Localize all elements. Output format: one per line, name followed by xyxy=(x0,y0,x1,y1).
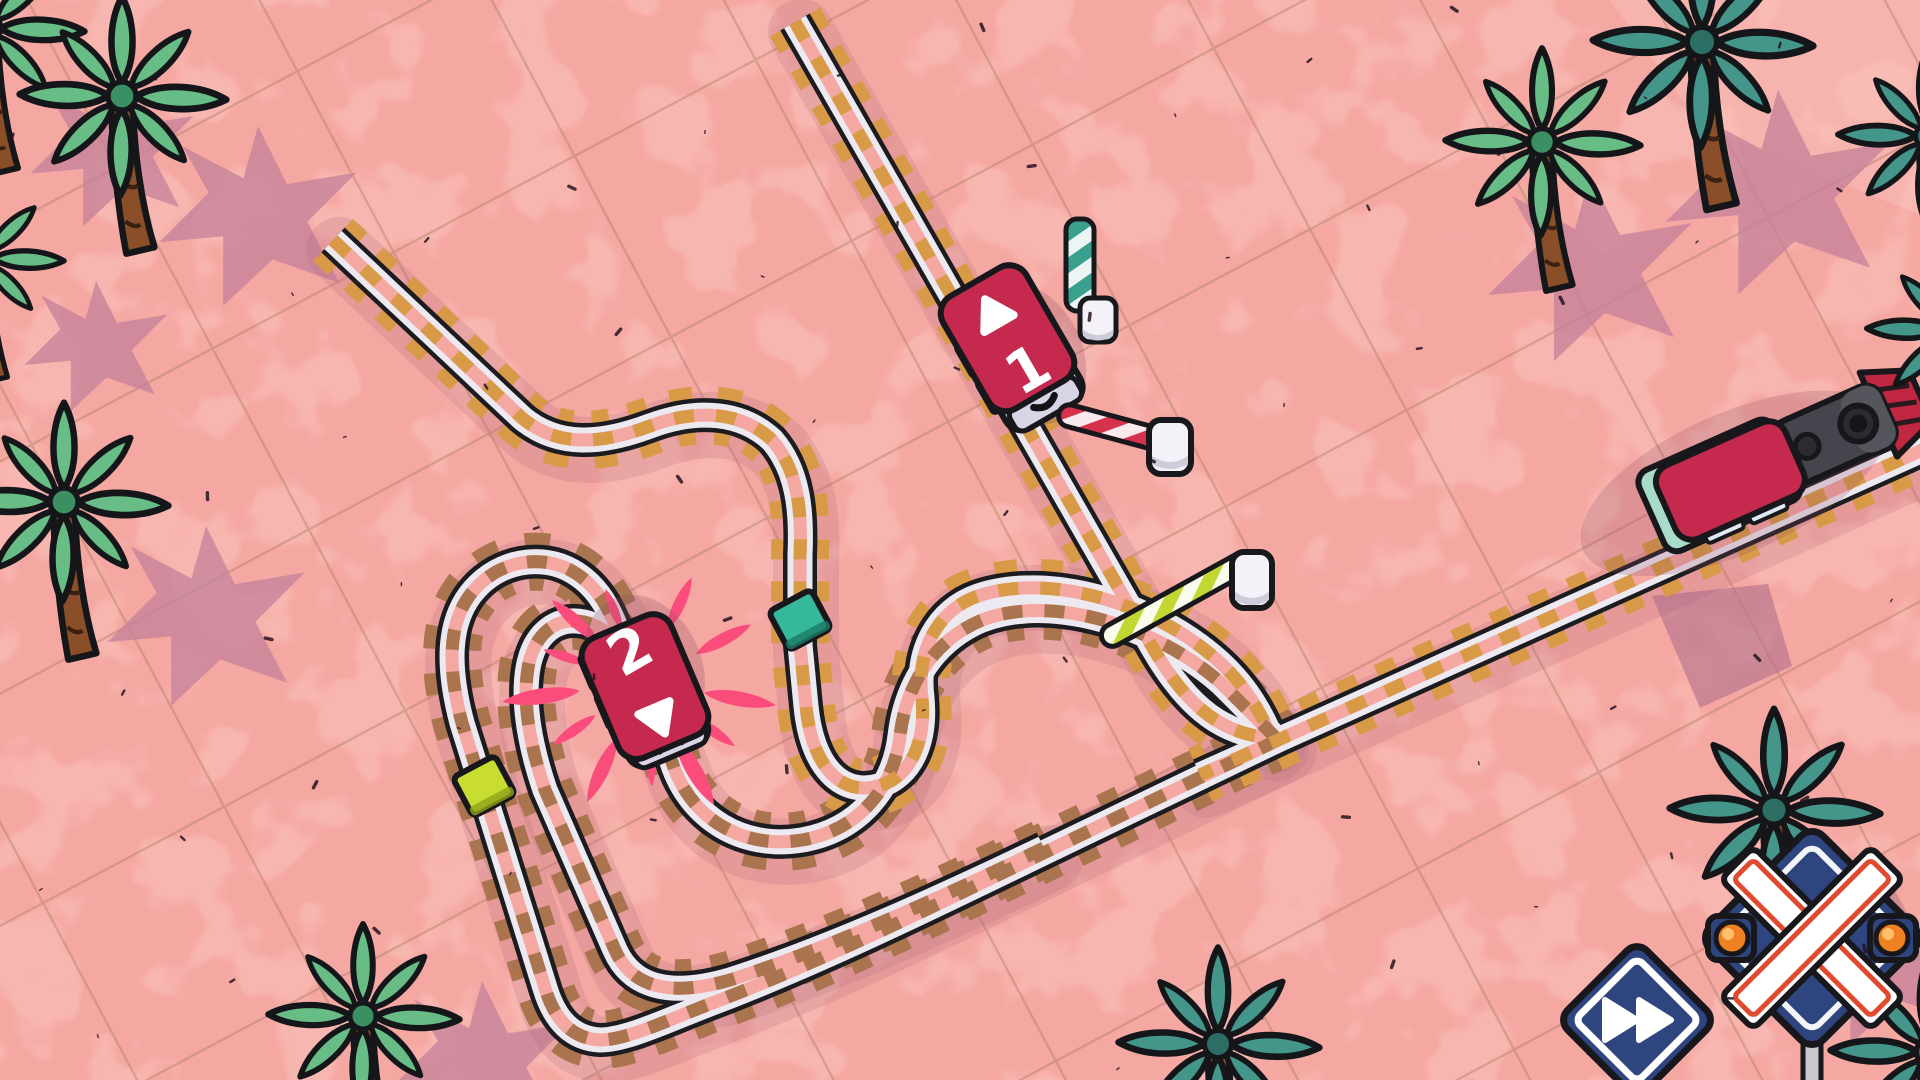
gate-post xyxy=(1149,420,1191,474)
game-viewport: 2 1 xyxy=(0,0,1920,1080)
game-board[interactable]: 2 1 xyxy=(0,0,1920,1080)
gate-post xyxy=(1232,552,1272,608)
pole-base xyxy=(1080,298,1116,342)
